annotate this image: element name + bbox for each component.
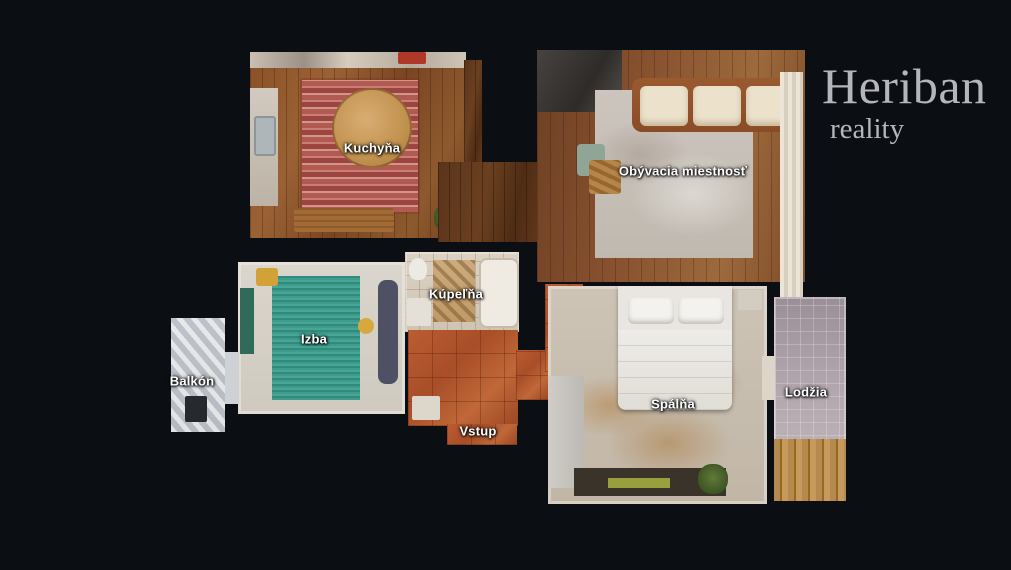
label-vstup: Vstup	[459, 424, 496, 439]
label-obyvacia-miestnost: Obývacia miestnosť	[619, 164, 747, 179]
agency-logo-tagline: reality	[822, 115, 987, 144]
agency-logo: Heriban reality	[822, 60, 987, 144]
label-kuchyna: Kuchyňa	[344, 141, 400, 156]
agency-logo-name: Heriban	[822, 60, 987, 113]
label-izba: Izba	[301, 332, 327, 347]
label-balkon: Balkón	[170, 374, 215, 389]
label-kupelna: Kúpeľňa	[429, 287, 483, 302]
floorplan-screenshot: Kuchyňa Obývacia miestnosť Izba Kúpeľňa …	[0, 0, 1011, 570]
label-spalna: Spálňa	[651, 397, 695, 412]
label-lodzia: Lodžia	[785, 385, 827, 400]
